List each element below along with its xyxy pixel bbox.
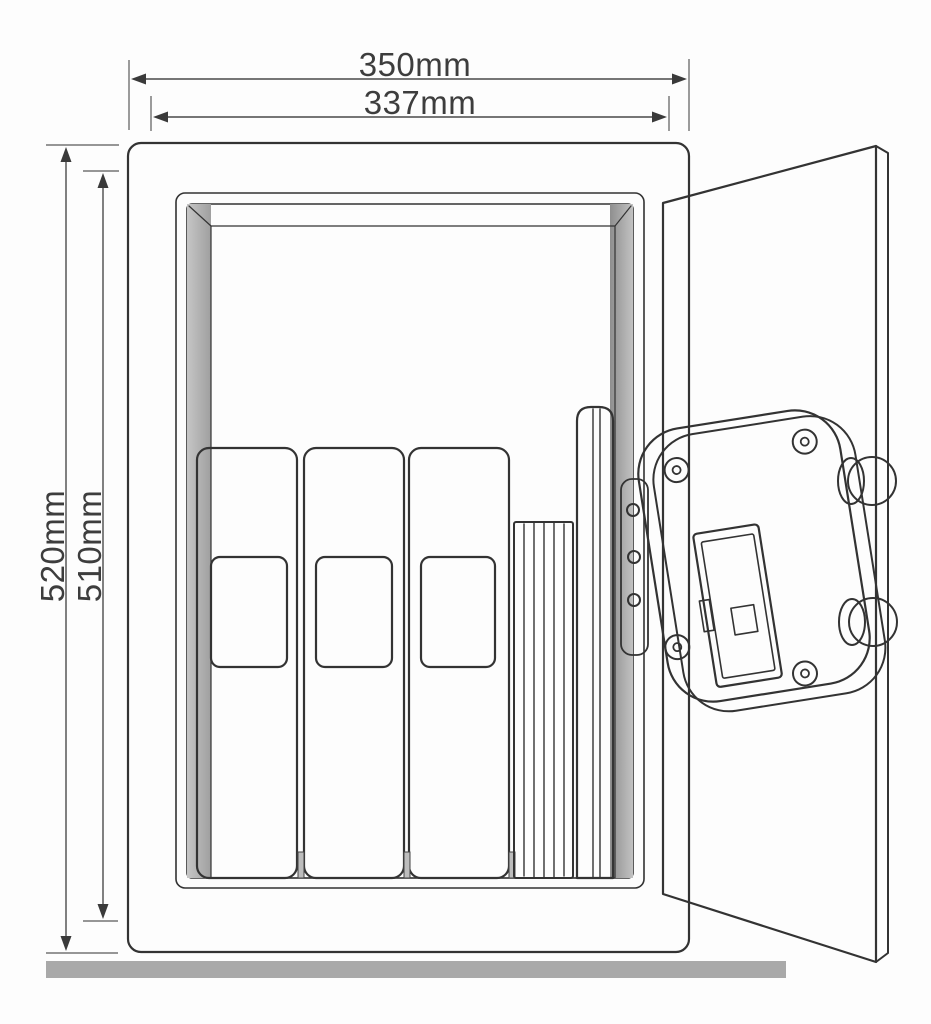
floor-line: [46, 961, 786, 978]
screw-top-right: [791, 428, 818, 455]
gap-tab-1: [298, 852, 304, 878]
lock-housing: [632, 402, 892, 721]
battery-window: [731, 605, 758, 635]
safe-contents: [197, 407, 613, 878]
arrow-down-icon: [61, 936, 72, 951]
binder-2: [304, 448, 404, 878]
binder-2-label: [316, 557, 392, 667]
dimension-inner-width: 337mm: [153, 84, 667, 123]
dimension-outer-height: 520mm: [34, 147, 72, 951]
binder-3-label: [421, 557, 495, 667]
door-edge: [876, 146, 888, 962]
arrow-up-icon: [61, 147, 72, 162]
interior-left-wall: [187, 204, 211, 878]
document-stack: [514, 522, 573, 878]
arrow-left-icon: [131, 74, 146, 85]
arrow-right-icon: [652, 112, 667, 123]
arrow-left-icon: [153, 112, 168, 123]
tall-folder: [577, 407, 613, 878]
battery-compartment: [689, 524, 782, 688]
dimension-outer-height-label: 520mm: [34, 490, 71, 603]
lock-housing-face: [632, 404, 877, 709]
binder-3: [409, 448, 509, 878]
gap-tab-2: [404, 852, 410, 878]
dimension-inner-height: 510mm: [71, 173, 109, 919]
dimension-inner-height-label: 510mm: [71, 490, 108, 603]
binder-1: [197, 448, 297, 878]
dimension-outer-width: 350mm: [131, 46, 687, 85]
arrow-down-icon: [98, 904, 109, 919]
arrow-up-icon: [98, 173, 109, 188]
binder-1-label: [211, 557, 287, 667]
arrow-right-icon: [672, 74, 687, 85]
dimension-inner-width-label: 337mm: [364, 84, 477, 121]
screw-top-left: [663, 456, 690, 483]
safe-dimension-diagram: 350mm 337mm 520mm 510mm: [0, 0, 931, 1024]
diagram-canvas: 350mm 337mm 520mm 510mm: [0, 0, 931, 1024]
dimension-outer-width-label: 350mm: [359, 46, 472, 83]
safe-door: [621, 146, 897, 962]
screw-bottom-right: [791, 660, 818, 687]
dimension-annotations: 350mm 337mm 520mm 510mm: [34, 46, 689, 953]
